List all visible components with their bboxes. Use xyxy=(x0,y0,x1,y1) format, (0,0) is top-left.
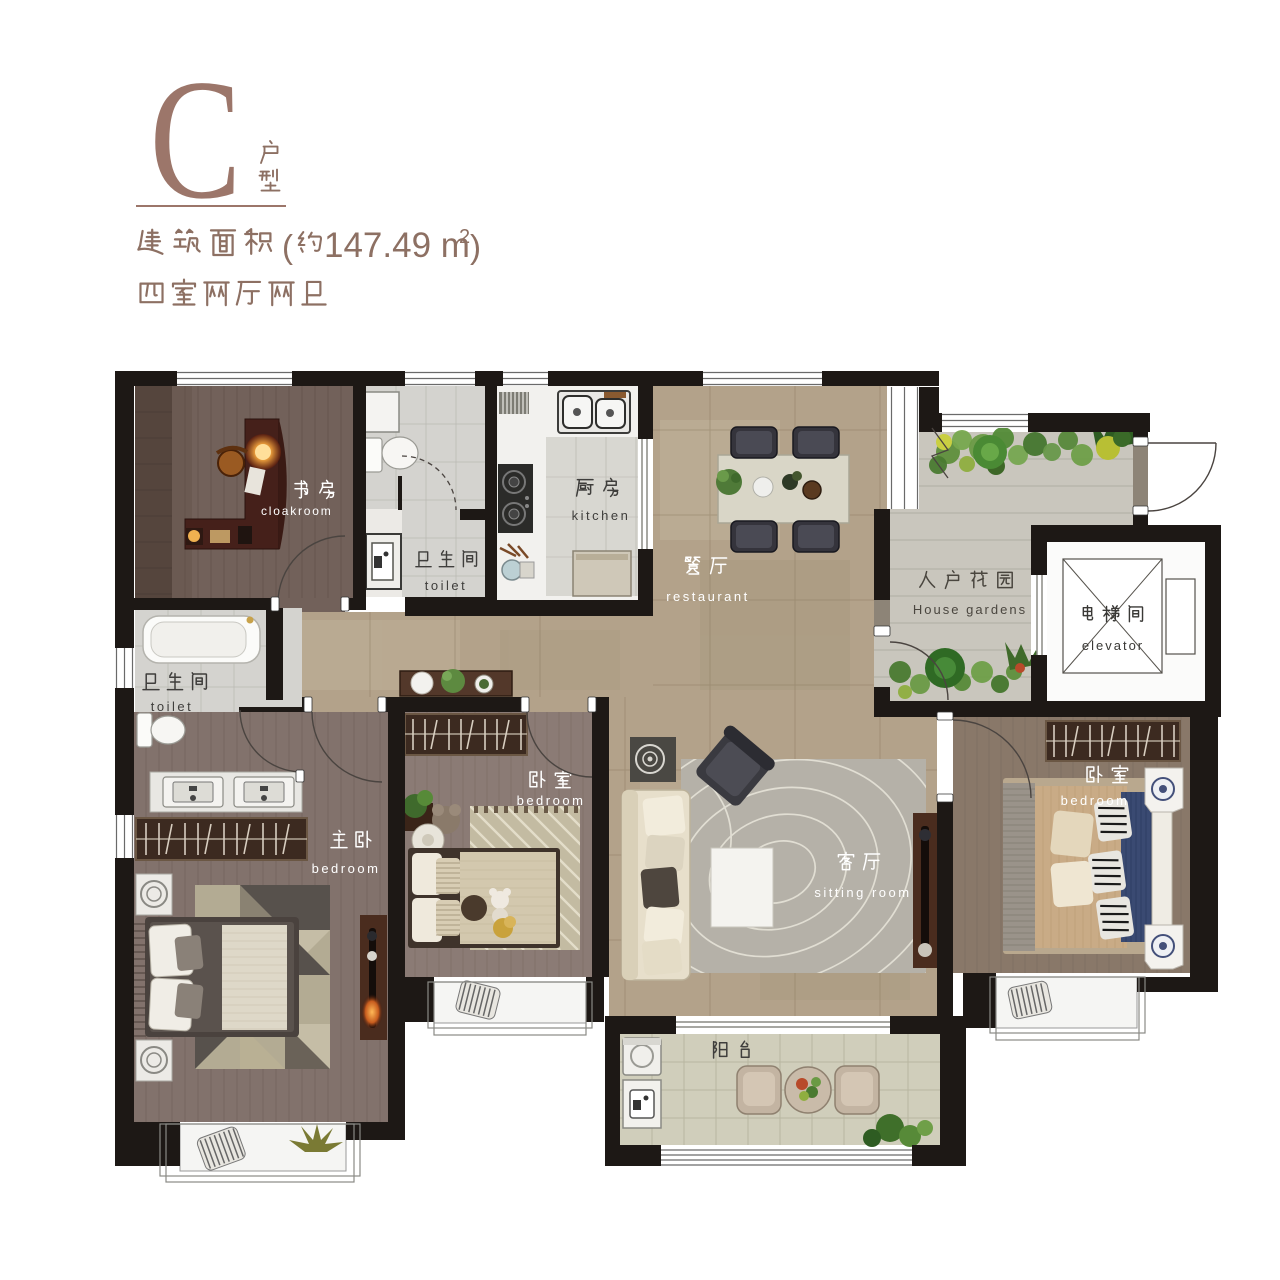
svg-text:bedroom: bedroom xyxy=(312,861,381,876)
svg-text:elevator: elevator xyxy=(1082,638,1144,653)
svg-text:kitchen: kitchen xyxy=(572,508,631,523)
svg-text:restaurant: restaurant xyxy=(666,589,750,604)
svg-text:): ) xyxy=(470,228,481,265)
svg-text:147.49 m: 147.49 m xyxy=(324,226,470,265)
svg-text:toilet: toilet xyxy=(151,699,193,714)
svg-text:bedroom: bedroom xyxy=(1061,793,1130,808)
svg-text:sitting room: sitting room xyxy=(814,885,911,900)
svg-text:bedroom: bedroom xyxy=(517,793,586,808)
svg-text:(: ( xyxy=(282,228,293,265)
svg-text:toilet: toilet xyxy=(425,578,467,593)
svg-text:House gardens: House gardens xyxy=(913,602,1027,617)
svg-text:2: 2 xyxy=(459,226,470,248)
svg-text:cloakroom: cloakroom xyxy=(261,504,333,518)
